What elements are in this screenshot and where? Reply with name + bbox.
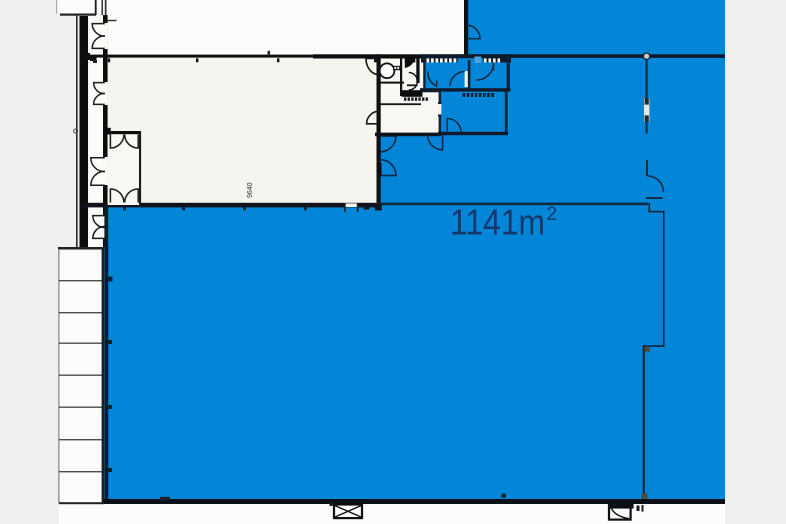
- svg-text:1141m: 1141m: [450, 202, 545, 243]
- svg-text:2: 2: [547, 204, 558, 225]
- svg-text:9640: 9640: [247, 182, 254, 198]
